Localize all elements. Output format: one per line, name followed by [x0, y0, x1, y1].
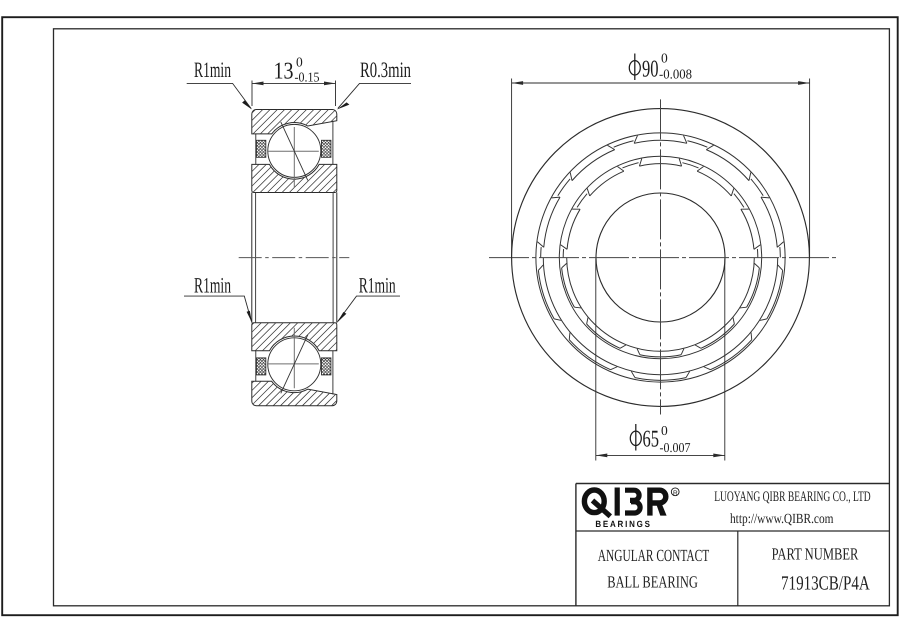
- svg-text:BEARINGS: BEARINGS: [595, 519, 651, 529]
- svg-text:http://www.QIBR.com: http://www.QIBR.com: [730, 512, 834, 527]
- svg-text:-0.15: -0.15: [295, 70, 320, 85]
- svg-text:LUOYANG QIBR BEARING CO., LTD: LUOYANG QIBR BEARING CO., LTD: [714, 489, 871, 505]
- svg-text:PART NUMBER: PART NUMBER: [772, 544, 859, 563]
- svg-text:ANGULAR CONTACT: ANGULAR CONTACT: [598, 546, 710, 565]
- svg-text:0: 0: [296, 55, 303, 70]
- svg-text:R0.3min: R0.3min: [360, 57, 411, 82]
- svg-text:R1min: R1min: [194, 57, 231, 82]
- svg-text:13: 13: [274, 59, 294, 85]
- svg-text:-0.008: -0.008: [659, 67, 692, 82]
- svg-text:0: 0: [661, 51, 668, 66]
- svg-text:R1min: R1min: [359, 273, 396, 298]
- svg-text:90: 90: [642, 57, 659, 83]
- svg-text:0: 0: [661, 423, 668, 438]
- svg-text:R: R: [673, 490, 678, 497]
- svg-text:65: 65: [643, 427, 660, 453]
- svg-text:R1min: R1min: [194, 273, 231, 298]
- svg-text:-0.007: -0.007: [660, 440, 691, 455]
- svg-text:71913CB/P4A: 71913CB/P4A: [781, 573, 870, 595]
- svg-text:BALL BEARING: BALL BEARING: [607, 573, 698, 592]
